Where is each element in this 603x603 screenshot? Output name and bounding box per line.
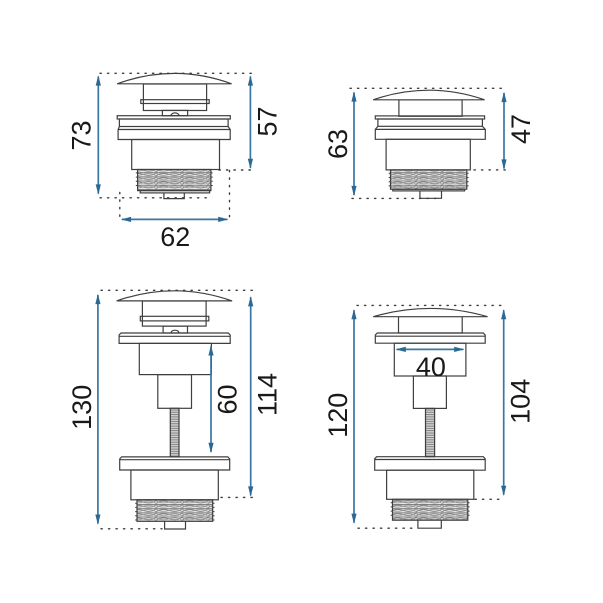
svg-text:130: 130 <box>67 385 97 430</box>
svg-text:60: 60 <box>213 384 243 414</box>
svg-text:104: 104 <box>506 379 536 424</box>
svg-text:40: 40 <box>416 352 446 382</box>
svg-text:73: 73 <box>67 120 97 150</box>
svg-text:57: 57 <box>253 106 283 136</box>
svg-text:114: 114 <box>253 373 283 416</box>
svg-text:47: 47 <box>506 114 536 144</box>
svg-text:120: 120 <box>323 393 353 438</box>
svg-text:62: 62 <box>160 222 190 252</box>
svg-text:63: 63 <box>323 129 353 159</box>
